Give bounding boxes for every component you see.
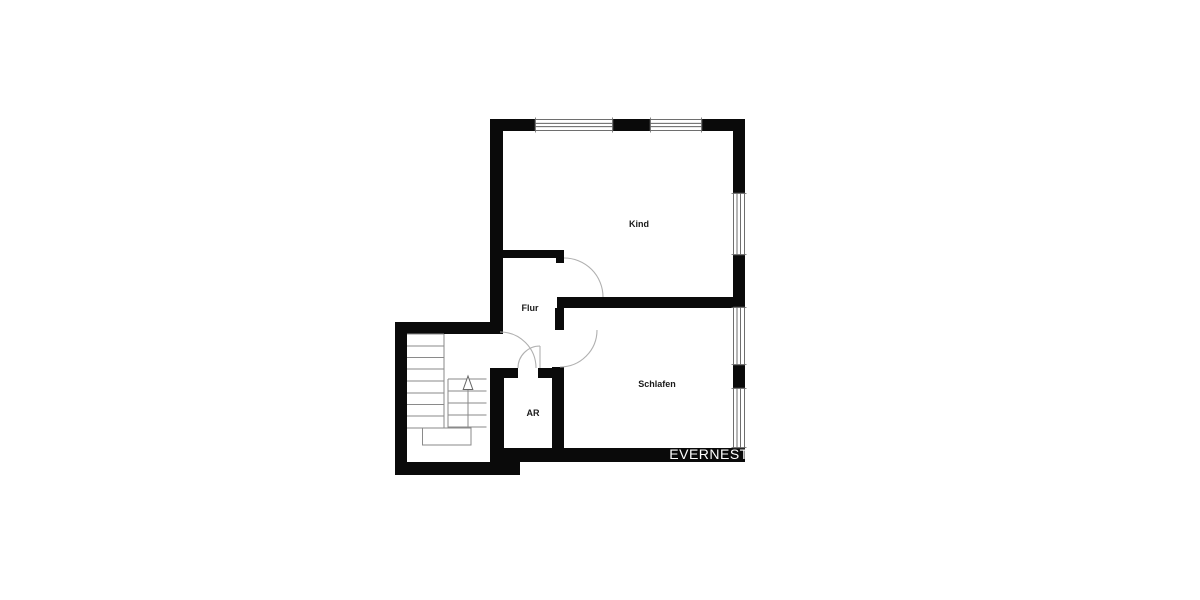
wall-ar-top-left: [502, 368, 518, 378]
wall-schlafen-door-jamb: [555, 308, 564, 330]
floor-plan: Kind Flur Schlafen AR EVERNEST: [0, 0, 1200, 600]
door-arc-entrance: [500, 332, 536, 368]
room-label-kind: Kind: [629, 219, 649, 229]
doors: [500, 258, 603, 368]
wall-kind-door-jamb: [556, 250, 564, 263]
wall-kind-schlafen-divider: [557, 297, 745, 308]
room-label-flur: Flur: [522, 303, 539, 313]
window: [650, 118, 702, 133]
window: [732, 193, 747, 255]
up-arrow-icon: [463, 376, 473, 428]
wall-ar-top-right: [538, 368, 554, 378]
wall-stairwell-left: [395, 322, 407, 475]
staircase: [407, 334, 487, 445]
wall-stairwell-top: [395, 322, 503, 334]
wall-left: [490, 119, 503, 334]
door-arc-ar: [518, 346, 540, 368]
windows: [535, 118, 747, 449]
stair-treads-left-flight: [407, 334, 444, 428]
room-label-schlafen: Schlafen: [638, 379, 676, 389]
window: [535, 118, 613, 133]
wall-stairwell-bottom: [395, 462, 520, 475]
wall-flur-kind-divider: [503, 250, 564, 258]
floor-plan-page: Kind Flur Schlafen AR EVERNEST: [0, 0, 1200, 600]
room-label-ar: AR: [527, 408, 540, 418]
window: [732, 388, 747, 448]
wall-top-middle: [613, 119, 650, 131]
wall-right-lower: [733, 365, 745, 388]
wall-right-upper: [733, 119, 745, 193]
wall-ar-right: [552, 367, 564, 448]
stair-landing: [423, 428, 472, 445]
window: [732, 307, 747, 365]
door-arc-schlafen: [560, 330, 597, 367]
watermark-logo: EVERNEST: [669, 446, 748, 462]
door-arc-kind: [564, 258, 603, 297]
wall-ar-left: [490, 368, 504, 448]
